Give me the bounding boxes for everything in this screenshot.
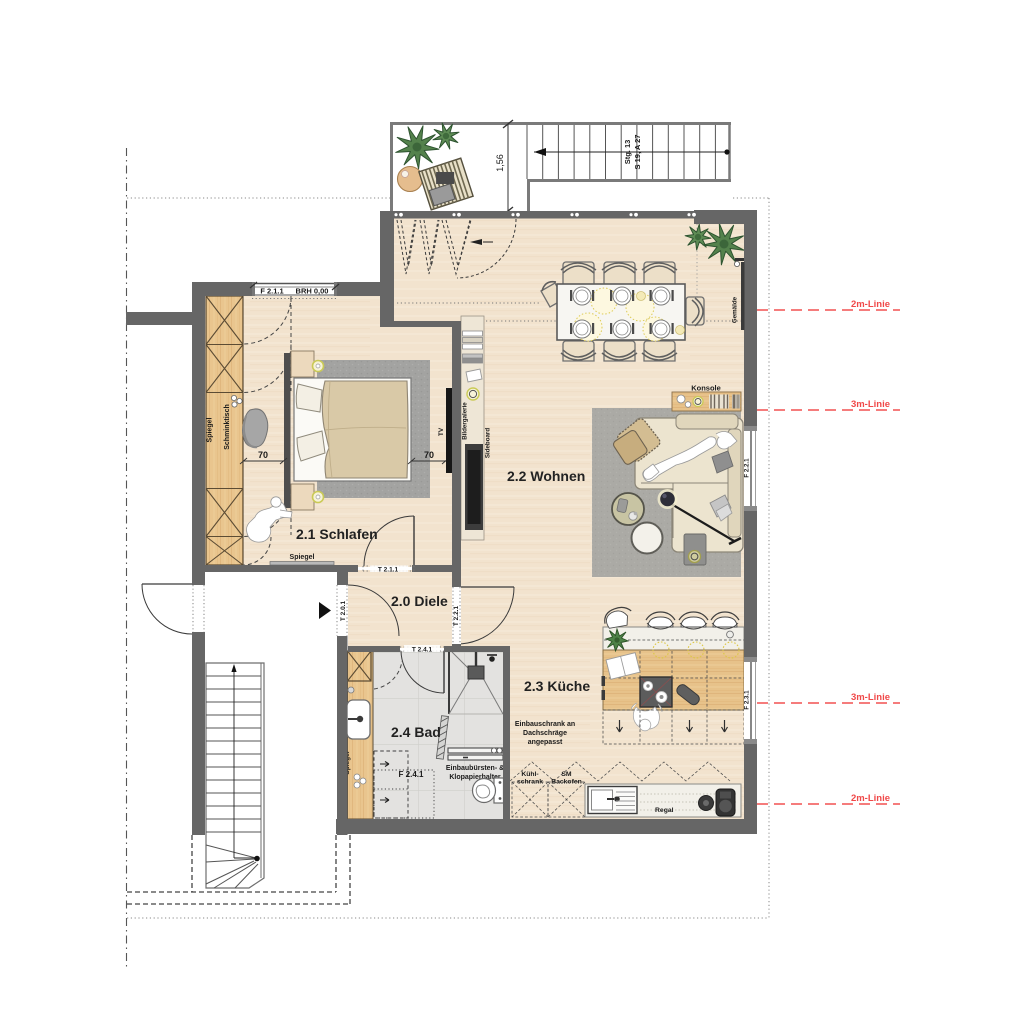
svg-text:TV: TV [438, 427, 445, 436]
svg-text:F 2.2.1: F 2.2.1 [744, 458, 751, 478]
svg-text:70: 70 [424, 450, 434, 460]
svg-text:Stg. 13: Stg. 13 [623, 140, 632, 165]
svg-text:T 2.4.1: T 2.4.1 [412, 647, 433, 654]
svg-text:schrank: schrank [517, 779, 543, 786]
svg-text:2.1 Schlafen: 2.1 Schlafen [296, 526, 378, 542]
svg-text:3m-Linie: 3m-Linie [851, 399, 890, 410]
svg-text:SM: SM [561, 771, 572, 778]
svg-text:T 2.1.1: T 2.1.1 [378, 567, 399, 574]
svg-text:Einbauschrank an: Einbauschrank an [515, 721, 575, 728]
svg-text:2.2 Wohnen: 2.2 Wohnen [507, 468, 585, 484]
svg-text:Kühl-: Kühl- [521, 771, 538, 778]
svg-text:Klopapierhalter: Klopapierhalter [449, 774, 501, 781]
svg-text:3m-Linie: 3m-Linie [851, 692, 890, 703]
svg-text:Spiegel: Spiegel [290, 554, 315, 561]
svg-text:S 19, A 27: S 19, A 27 [633, 135, 642, 170]
svg-text:70: 70 [258, 450, 268, 460]
svg-text:Konsole: Konsole [691, 384, 721, 393]
svg-text:T 2.2.1: T 2.2.1 [453, 605, 460, 626]
svg-text:angepasst: angepasst [528, 739, 563, 746]
svg-text:Bildergalerie: Bildergalerie [462, 402, 469, 440]
svg-text:Spiegel: Spiegel [207, 418, 214, 443]
svg-text:Regal: Regal [655, 807, 674, 814]
svg-text:Sideboard: Sideboard [485, 428, 492, 458]
svg-text:1,56: 1,56 [495, 154, 505, 172]
svg-text:2m-Linie: 2m-Linie [851, 299, 890, 310]
svg-text:2.0 Diele: 2.0 Diele [391, 593, 448, 609]
svg-text:Backofen: Backofen [551, 779, 582, 786]
svg-text:Dachschräge: Dachschräge [523, 730, 567, 737]
svg-text:F 2.1.1: F 2.1.1 [260, 287, 283, 296]
svg-text:2.4 Bad: 2.4 Bad [391, 724, 441, 740]
svg-text:F 2.4.1: F 2.4.1 [399, 770, 424, 779]
svg-text:BRH 0,00: BRH 0,00 [296, 287, 329, 296]
svg-text:F 2.3.1: F 2.3.1 [744, 690, 751, 710]
svg-text:2m-Linie: 2m-Linie [851, 793, 890, 804]
svg-text:2.3 Küche: 2.3 Küche [524, 678, 590, 694]
svg-text:Gemälde: Gemälde [732, 296, 739, 323]
svg-text:Einbaubürsten- &: Einbaubürsten- & [446, 765, 504, 772]
svg-text:T 2.0.1: T 2.0.1 [340, 600, 347, 621]
svg-text:Schminktisch: Schminktisch [224, 404, 231, 450]
